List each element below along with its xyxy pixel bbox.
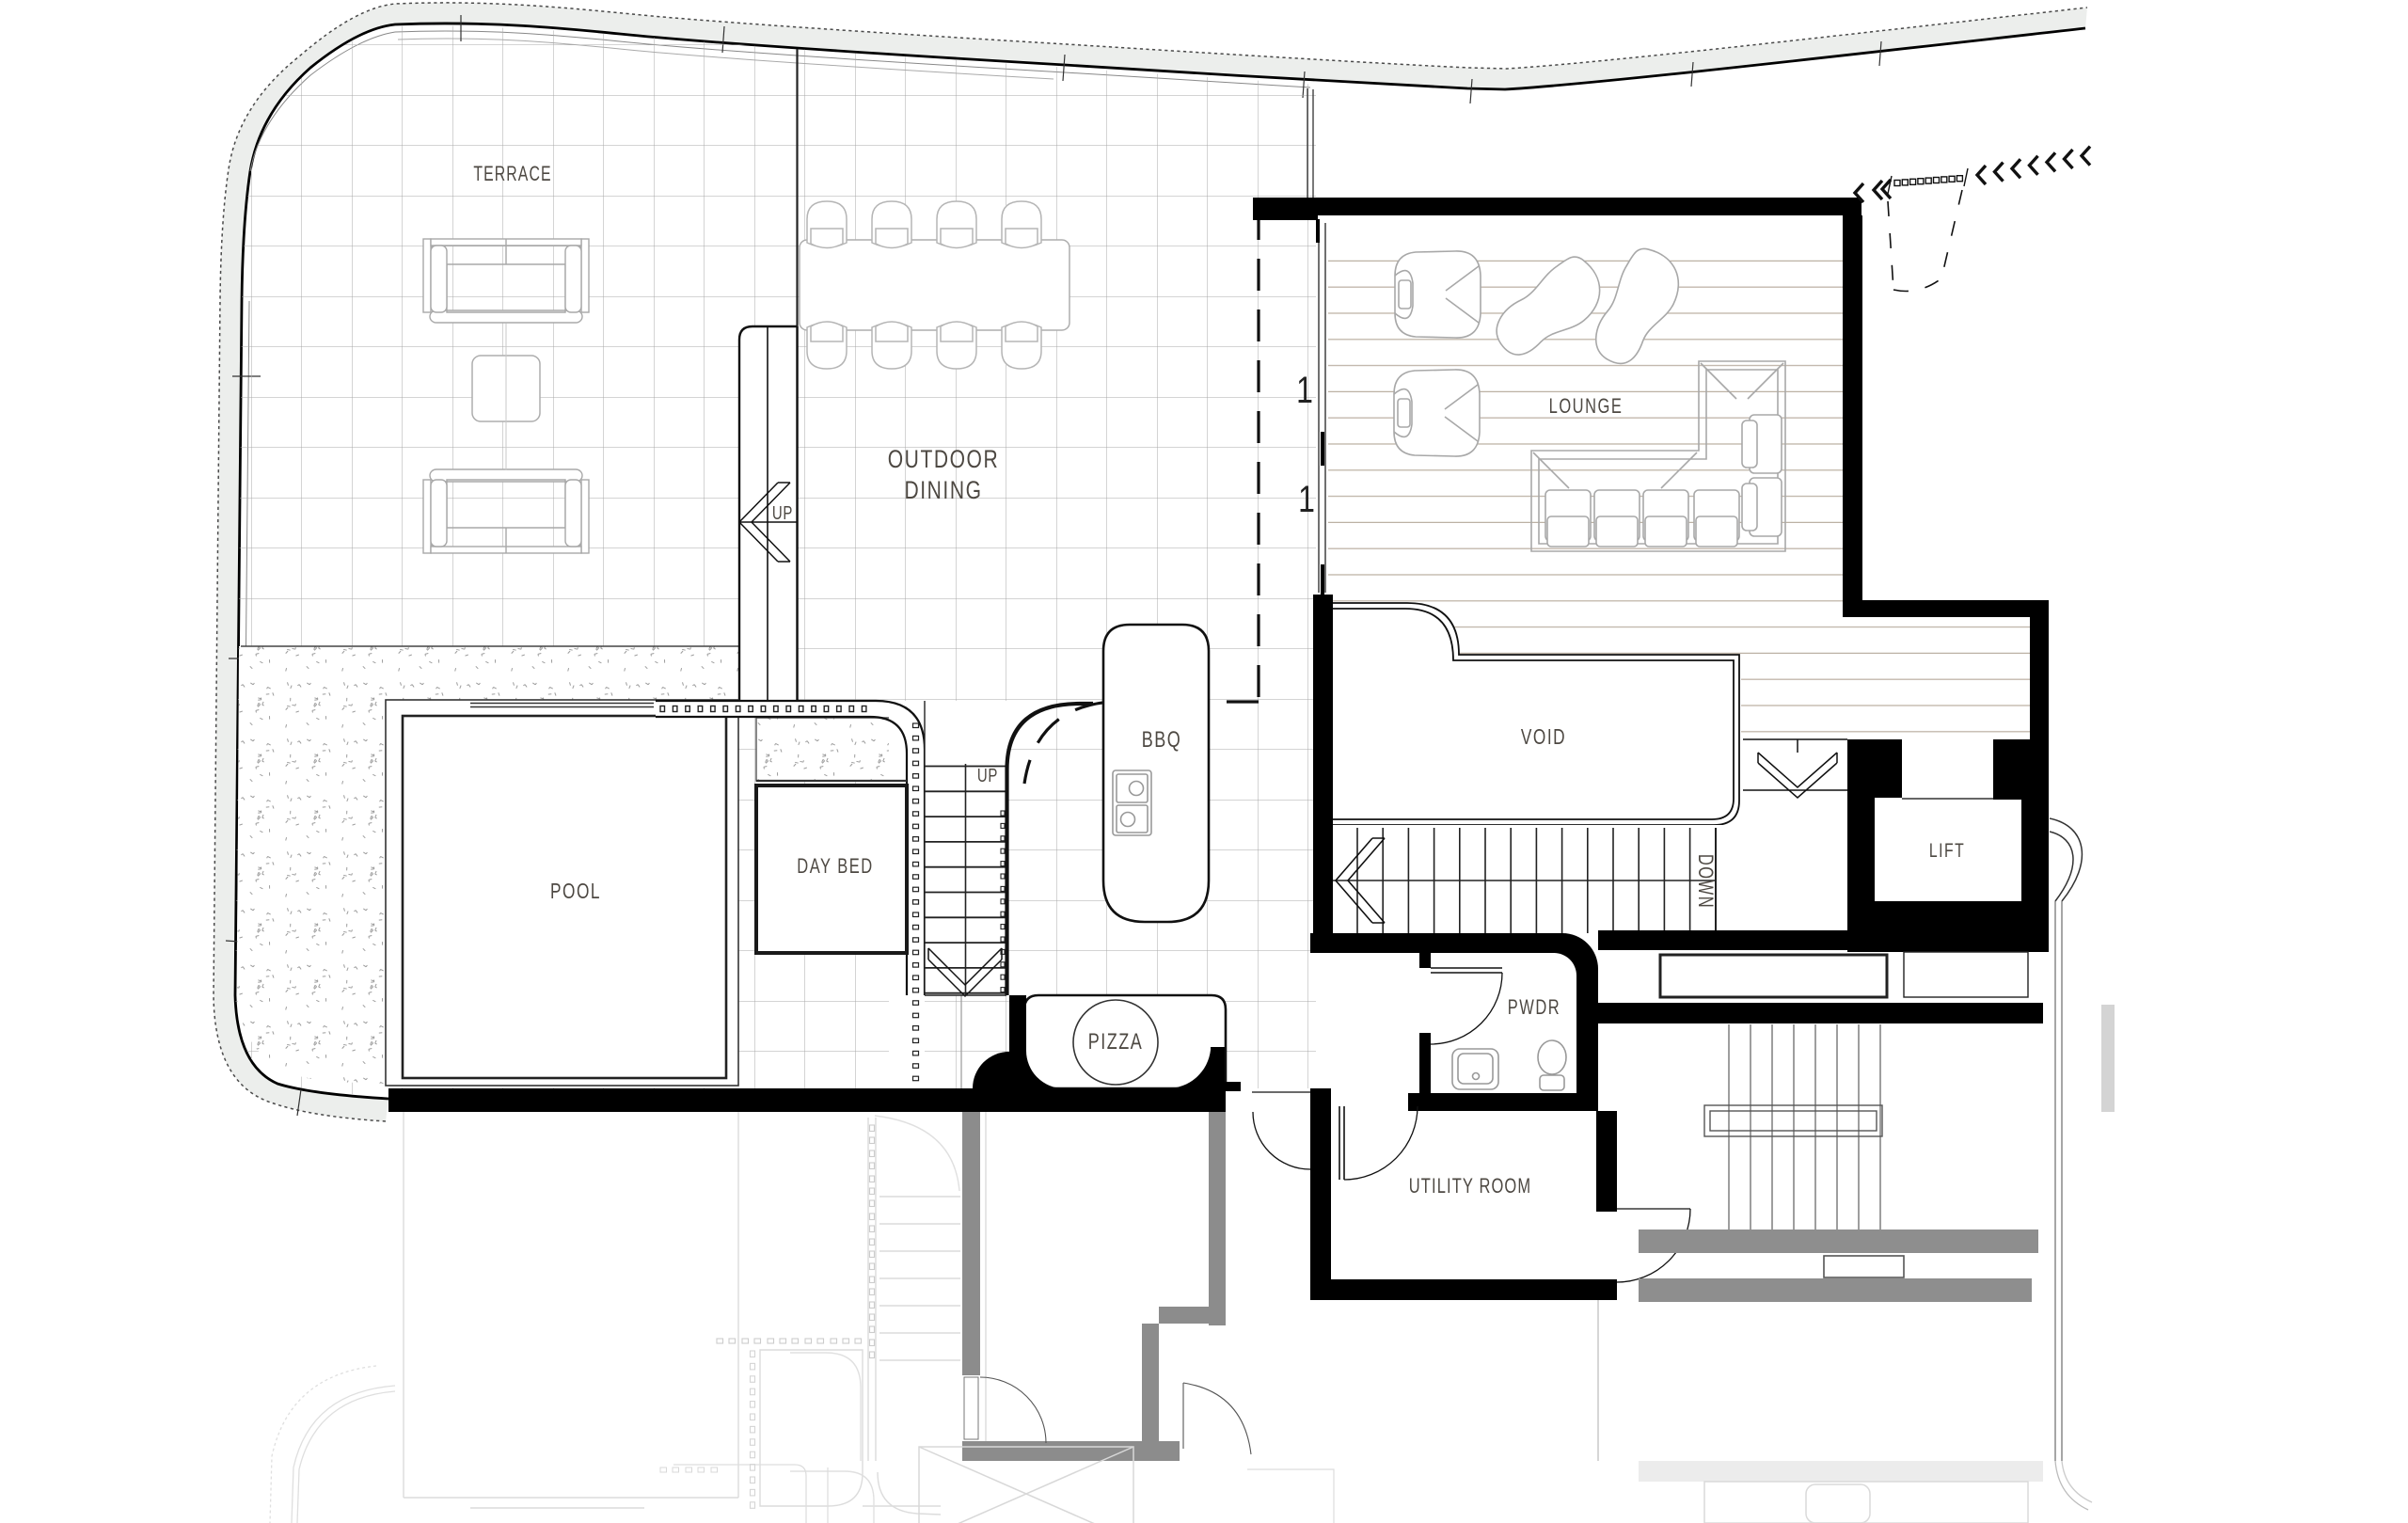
svg-text:POOL: POOL <box>550 880 601 904</box>
svg-text:1: 1 <box>1296 369 1313 411</box>
svg-text:UTILITY ROOM: UTILITY ROOM <box>1409 1175 1532 1198</box>
svg-text:VOID: VOID <box>1521 726 1566 750</box>
svg-text:UP: UP <box>977 765 998 786</box>
svg-text:LOUNGE: LOUNGE <box>1549 395 1624 419</box>
svg-text:PWDR: PWDR <box>1508 996 1560 1020</box>
svg-text:DINING: DINING <box>904 477 982 505</box>
svg-text:1: 1 <box>1298 478 1315 520</box>
svg-text:PIZZA: PIZZA <box>1088 1030 1143 1055</box>
svg-text:OUTDOOR: OUTDOOR <box>888 446 1000 474</box>
svg-text:LIFT: LIFT <box>1929 839 1965 862</box>
svg-text:DAY BED: DAY BED <box>797 855 873 879</box>
svg-text:BBQ: BBQ <box>1142 728 1182 753</box>
svg-text:DOWN: DOWN <box>1693 854 1717 909</box>
svg-text:UP: UP <box>772 502 793 524</box>
svg-text:TERRACE: TERRACE <box>473 164 551 186</box>
